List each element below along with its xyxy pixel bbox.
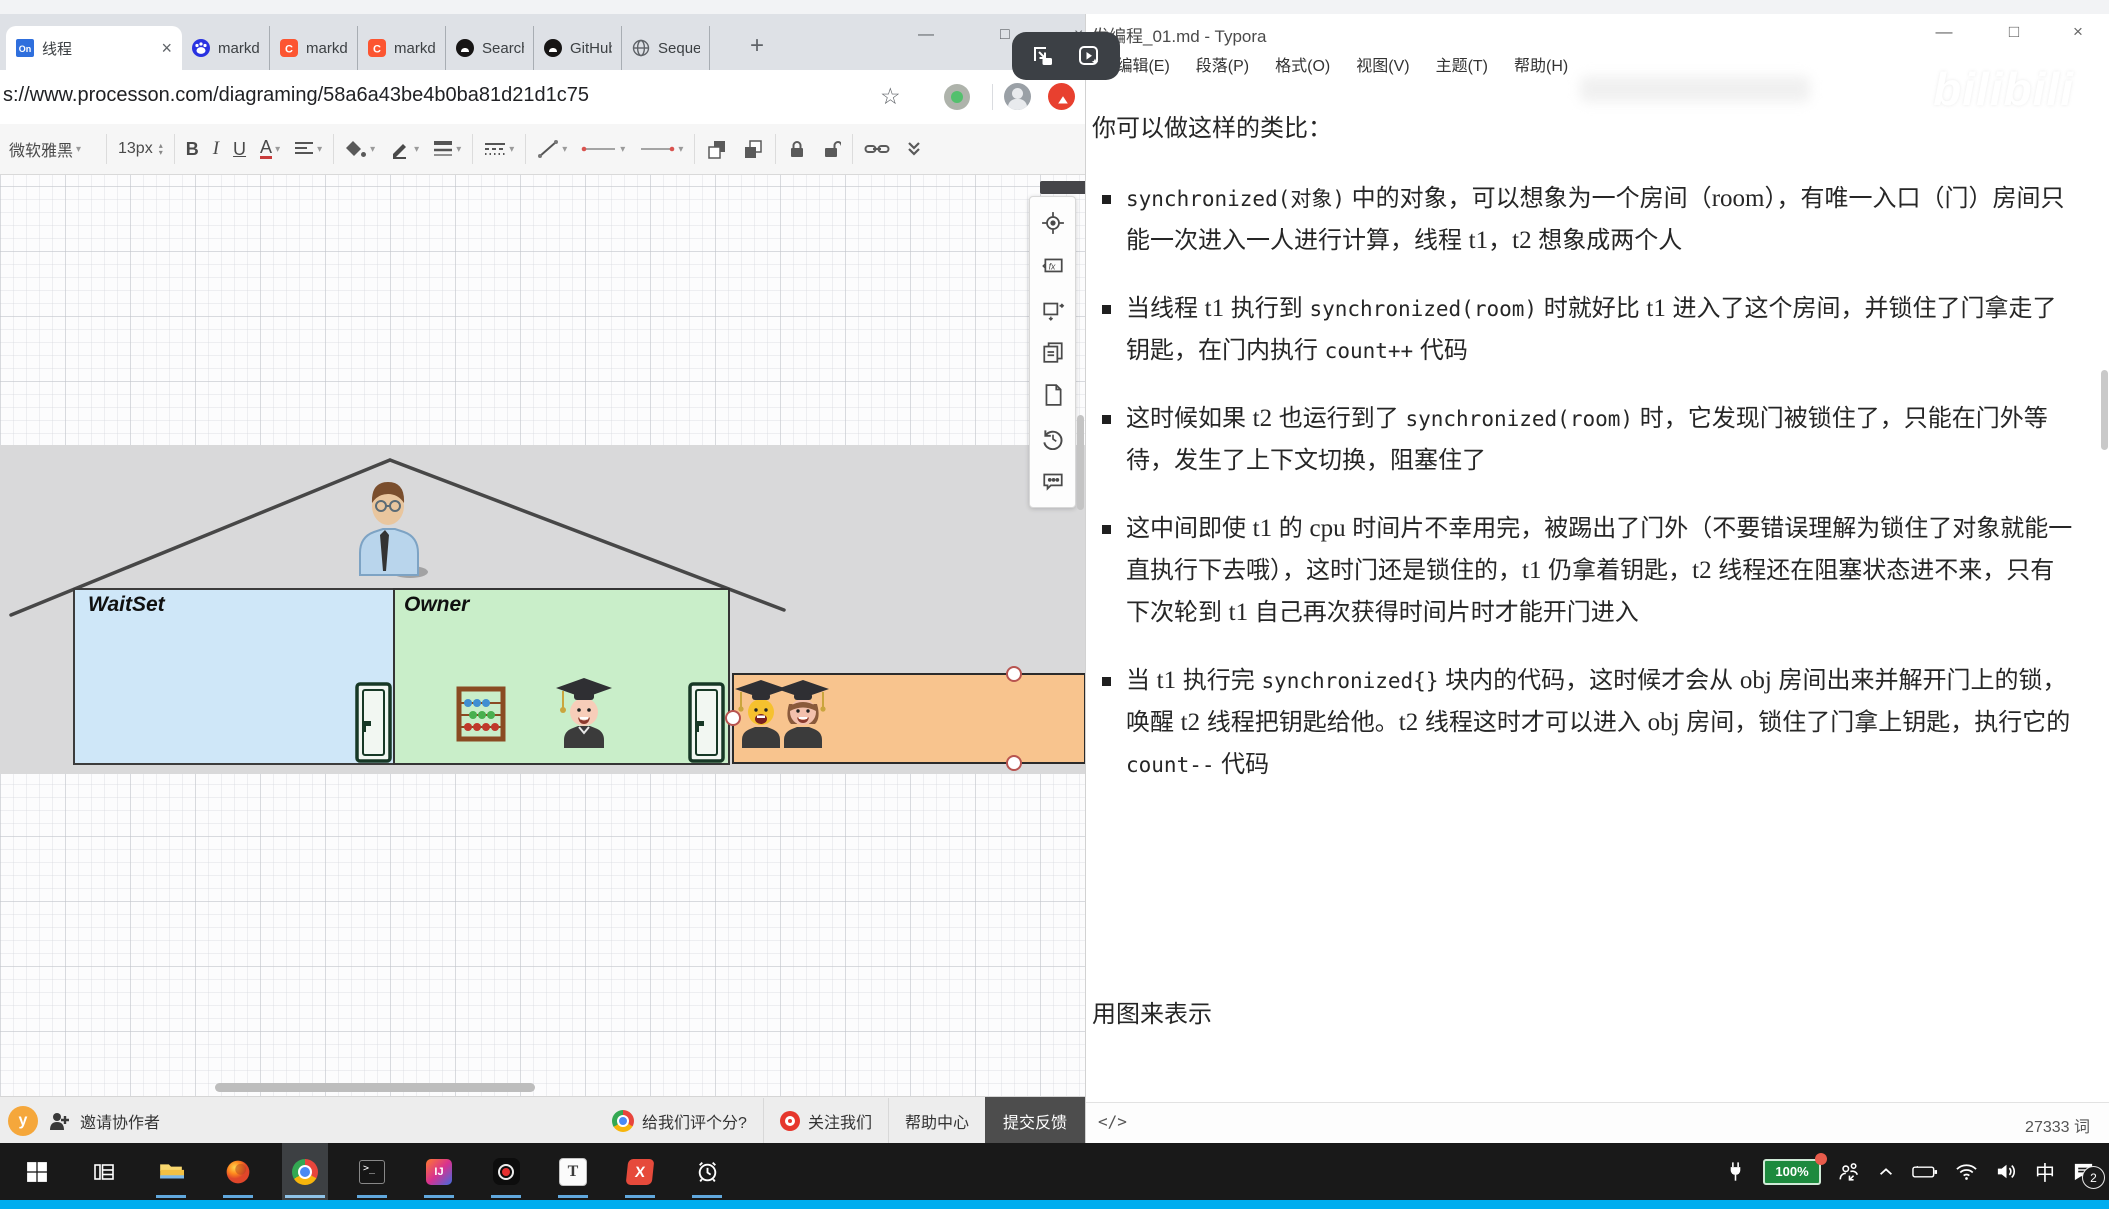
video-overlay-pill — [1012, 32, 1120, 80]
source-code-toggle[interactable]: </> — [1098, 1112, 1127, 1131]
svg-text:C: C — [285, 44, 293, 56]
typora-menu-帮助H[interactable]: 帮助(H) — [1514, 52, 1568, 76]
baidu-favicon — [192, 39, 210, 57]
taskbar-firefox[interactable] — [215, 1143, 261, 1200]
new-page-icon[interactable] — [1038, 380, 1068, 410]
canvas-vertical-scrollbar[interactable] — [1077, 415, 1084, 510]
tab-label: 线程 — [42, 38, 151, 59]
tray-volume-icon[interactable] — [1995, 1160, 2018, 1183]
font-family-select[interactable]: 微软雅黑▾ — [2, 132, 102, 166]
red-extension-icon[interactable] — [1048, 83, 1075, 110]
browser-minimize-button[interactable]: — — [918, 26, 934, 44]
browser-tab-Search[interactable]: Search — [446, 26, 534, 70]
divider — [992, 84, 993, 110]
svg-text:C: C — [373, 44, 381, 56]
svg-text:fx: fx — [1048, 261, 1055, 271]
bookmark-star-icon[interactable]: ☆ — [880, 83, 901, 110]
typora-window: 发编程_01.md - Typora — □ × 文件(F)编辑(E)段落(P)… — [1085, 14, 2109, 1143]
line-style-button[interactable]: ▾ — [477, 132, 521, 166]
running-indicator — [491, 1195, 521, 1198]
bullet-marker — [1102, 305, 1111, 314]
tray-chevron-up-icon[interactable] — [1877, 1163, 1895, 1181]
running-indicator — [357, 1195, 387, 1198]
browser-tab-线程[interactable]: On线程× — [6, 26, 182, 70]
url-text[interactable]: s://www.processon.com/diagraming/58a6a43… — [3, 84, 589, 107]
typora-paragraph: 用图来表示 — [1092, 994, 2078, 1036]
taskbar-typora[interactable]: T — [550, 1143, 596, 1200]
running-indicator — [625, 1195, 655, 1198]
follow-us-button[interactable]: 关注我们 — [764, 1097, 888, 1144]
taskbar-alarm-clock[interactable] — [684, 1143, 730, 1200]
line-end-style-button[interactable]: ▾ — [632, 132, 690, 166]
bullet-marker — [1102, 415, 1111, 424]
align-button[interactable]: ▾ — [287, 132, 329, 166]
typora-maximize-button[interactable]: □ — [1994, 18, 2034, 46]
bullet-marker — [1102, 195, 1111, 204]
screen-edge-strip — [0, 1200, 2109, 1209]
font-color-button[interactable]: A▾ — [253, 132, 287, 166]
scrollbar-fragment — [1040, 181, 1085, 194]
connector-line-button[interactable]: ▾ — [530, 132, 574, 166]
typora-paragraph: 当线程 t1 执行到 synchronized(room) 时就好比 t1 进入… — [1092, 288, 2078, 372]
tray-wifi-icon[interactable] — [1955, 1160, 1978, 1183]
chrome-icon — [612, 1110, 634, 1132]
taskbar-task-view[interactable] — [81, 1143, 127, 1200]
history-icon[interactable] — [1038, 423, 1068, 453]
desktop: 发编程_01.md - Typora — □ × 文件(F)编辑(E)段落(P)… — [0, 0, 2109, 1209]
typora-document[interactable]: 你可以做这样的类比：synchronized(对象) 中的对象，可以想象为一个房… — [1086, 90, 2106, 1099]
globe-favicon — [632, 39, 650, 57]
weibo-icon — [780, 1111, 800, 1131]
copy-style-icon[interactable] — [1038, 337, 1068, 367]
taskbar-terminal[interactable]: >_ — [349, 1143, 395, 1200]
typora-statusbar: </> 27333 词 — [1086, 1102, 2109, 1143]
line-start-style-button[interactable]: ▾ — [574, 132, 632, 166]
extension-icon[interactable] — [944, 84, 970, 110]
taskbar-screen-recorder[interactable] — [483, 1143, 529, 1200]
tray-notifications-icon[interactable]: 2 — [2072, 1160, 2095, 1183]
underline-button[interactable]: U — [226, 132, 253, 166]
add-collaborator-icon — [48, 1111, 72, 1131]
running-indicator — [424, 1195, 454, 1198]
waitset-door[interactable] — [357, 684, 390, 761]
tab-label: markdo — [306, 40, 348, 57]
bullet-marker — [1102, 677, 1111, 686]
typora-paragraph: 你可以做这样的类比： — [1092, 108, 2078, 150]
browser-tab-markdo[interactable]: markdo — [182, 26, 270, 70]
running-indicator — [692, 1195, 722, 1198]
user-avatar[interactable]: y — [8, 1106, 38, 1136]
tab-label: Search — [482, 40, 524, 57]
send-to-back-button[interactable] — [735, 132, 771, 166]
tab-label: markdo — [394, 40, 436, 57]
running-indicator — [223, 1195, 253, 1198]
help-center-button[interactable]: 帮助中心 — [889, 1097, 985, 1144]
bold-button[interactable]: B — [179, 132, 206, 166]
rate-us-button[interactable]: 给我们评个分? — [596, 1097, 763, 1144]
windows-taskbar: >_IJTX 100%中2 — [0, 1143, 2109, 1200]
csdn-favicon: C — [280, 39, 298, 57]
taskbar-chrome[interactable] — [282, 1143, 328, 1200]
typora-scrollbar-thumb[interactable] — [2101, 370, 2108, 450]
picture-in-picture-icon[interactable] — [1031, 44, 1055, 68]
more-tools-chevron-icon[interactable] — [897, 132, 931, 166]
italic-button[interactable]: I — [206, 132, 226, 166]
typora-paragraph: 这中间即使 t1 的 cpu 时间片不幸用完，被踢出了门外（不要错误理解为锁住了… — [1092, 508, 2078, 634]
notification-badge: 2 — [2082, 1166, 2105, 1189]
play-enhance-icon[interactable] — [1077, 44, 1101, 68]
diagram-canvas[interactable]: WaitSet Owner fx — [0, 175, 1085, 1097]
bullet-marker — [1102, 525, 1111, 534]
invite-collaborator-button[interactable]: 邀请协作者 — [80, 1109, 160, 1133]
typora-minimize-button[interactable]: — — [1924, 18, 1964, 46]
browser-tab-Sequen[interactable]: Sequen — [622, 26, 710, 70]
tray-battery-icon[interactable] — [1912, 1164, 1938, 1180]
house-diagram — [0, 175, 1085, 1097]
fill-color-button[interactable]: ▾ — [338, 132, 382, 166]
tab-close-icon[interactable]: × — [161, 38, 172, 59]
alert-dot-icon — [1815, 1153, 1827, 1165]
running-indicator — [558, 1195, 588, 1198]
tab-label: GitHub — [570, 40, 612, 57]
taskbar-intellij[interactable]: IJ — [416, 1143, 462, 1200]
typora-menu-视图V[interactable]: 视图(V) — [1356, 52, 1409, 76]
taskbar-xmind[interactable]: X — [617, 1143, 663, 1200]
chrome-window: On线程×markdoCmarkdoCmarkdoSearchGitHubSeq… — [0, 14, 1085, 1143]
typora-menu-编辑E[interactable]: 编辑(E) — [1116, 52, 1169, 76]
profile-avatar-icon[interactable] — [1004, 83, 1031, 110]
entry-door[interactable] — [690, 684, 723, 761]
tray-battery-green-icon[interactable]: 100% — [1763, 1159, 1821, 1185]
tray-ime-icon[interactable]: 中 — [2035, 1157, 2055, 1186]
tab-label: markdo — [218, 40, 260, 57]
typora-menu-段落P[interactable]: 段落(P) — [1196, 52, 1249, 76]
typora-close-button[interactable]: × — [2058, 18, 2098, 46]
typora-paragraph: 当 t1 执行完 synchronized{} 块内的代码，这时候才会从 obj… — [1092, 660, 2078, 786]
address-bar-row: s://www.processon.com/diagraming/58a6a43… — [0, 70, 1085, 125]
processon-toolbar: 微软雅黑▾ 13px▴▾ B I U A▾ ▾ ▾ ▾ ▾ ▾ ▾ ▾ ▾ — [0, 124, 1085, 175]
taskbar-start-button[interactable] — [14, 1143, 60, 1200]
typora-paragraph: synchronized(对象) 中的对象，可以想象为一个房间（room），有唯… — [1092, 178, 2078, 262]
font-size-select[interactable]: 13px▴▾ — [111, 132, 170, 166]
typora-paragraph: 这时候如果 t2 也运行到了 synchronized(room) 时，它发现门… — [1092, 398, 2078, 482]
feedback-button[interactable]: 提交反馈 — [985, 1097, 1085, 1144]
running-indicator — [285, 1195, 325, 1198]
canvas-size-icon[interactable] — [1038, 294, 1068, 324]
lock-button[interactable] — [780, 132, 814, 166]
comment-icon[interactable] — [1038, 466, 1068, 496]
running-indicator — [156, 1195, 186, 1198]
link-button[interactable] — [857, 132, 897, 166]
taskbar-file-explorer[interactable] — [148, 1143, 194, 1200]
tray-people-icon[interactable] — [1838, 1161, 1860, 1183]
canvas-side-panel: fx — [1029, 196, 1076, 508]
github-favicon — [456, 39, 474, 57]
browser-maximize-button[interactable]: □ — [1000, 26, 1010, 44]
csdn-favicon: C — [368, 39, 386, 57]
tab-label: Sequen — [658, 40, 700, 57]
svg-text:On: On — [19, 44, 32, 54]
format-panel-icon[interactable]: fx — [1038, 251, 1068, 281]
processon-bottom-bar: y 邀请协作者 给我们评个分? 关注我们 帮助中心 提交反馈 — [0, 1096, 1085, 1144]
processon-favicon: On — [16, 39, 34, 57]
tab-strip: On线程×markdoCmarkdoCmarkdoSearchGitHubSeq… — [0, 14, 1085, 70]
line-color-button[interactable]: ▾ — [382, 132, 426, 166]
typora-menu-格式O[interactable]: 格式(O) — [1275, 52, 1330, 76]
browser-tab-markdo[interactable]: Cmarkdo — [358, 26, 446, 70]
browser-tab-GitHub[interactable]: GitHub — [534, 26, 622, 70]
github-favicon — [544, 39, 562, 57]
browser-tab-markdo[interactable]: Cmarkdo — [270, 26, 358, 70]
waitset-label: WaitSet — [88, 593, 165, 617]
navigator-icon[interactable] — [1038, 208, 1068, 238]
word-count: 27333 词 — [2025, 1113, 2090, 1137]
canvas-horizontal-scrollbar[interactable] — [215, 1083, 535, 1092]
owner-label: Owner — [404, 593, 469, 617]
bring-to-front-button[interactable] — [699, 132, 735, 166]
line-weight-button[interactable]: ▾ — [426, 132, 468, 166]
typora-menu-主题T[interactable]: 主题(T) — [1436, 52, 1488, 76]
tray-power-plug-icon[interactable] — [1725, 1161, 1746, 1182]
new-tab-button[interactable]: + — [742, 32, 772, 62]
unlock-button[interactable] — [814, 132, 848, 166]
